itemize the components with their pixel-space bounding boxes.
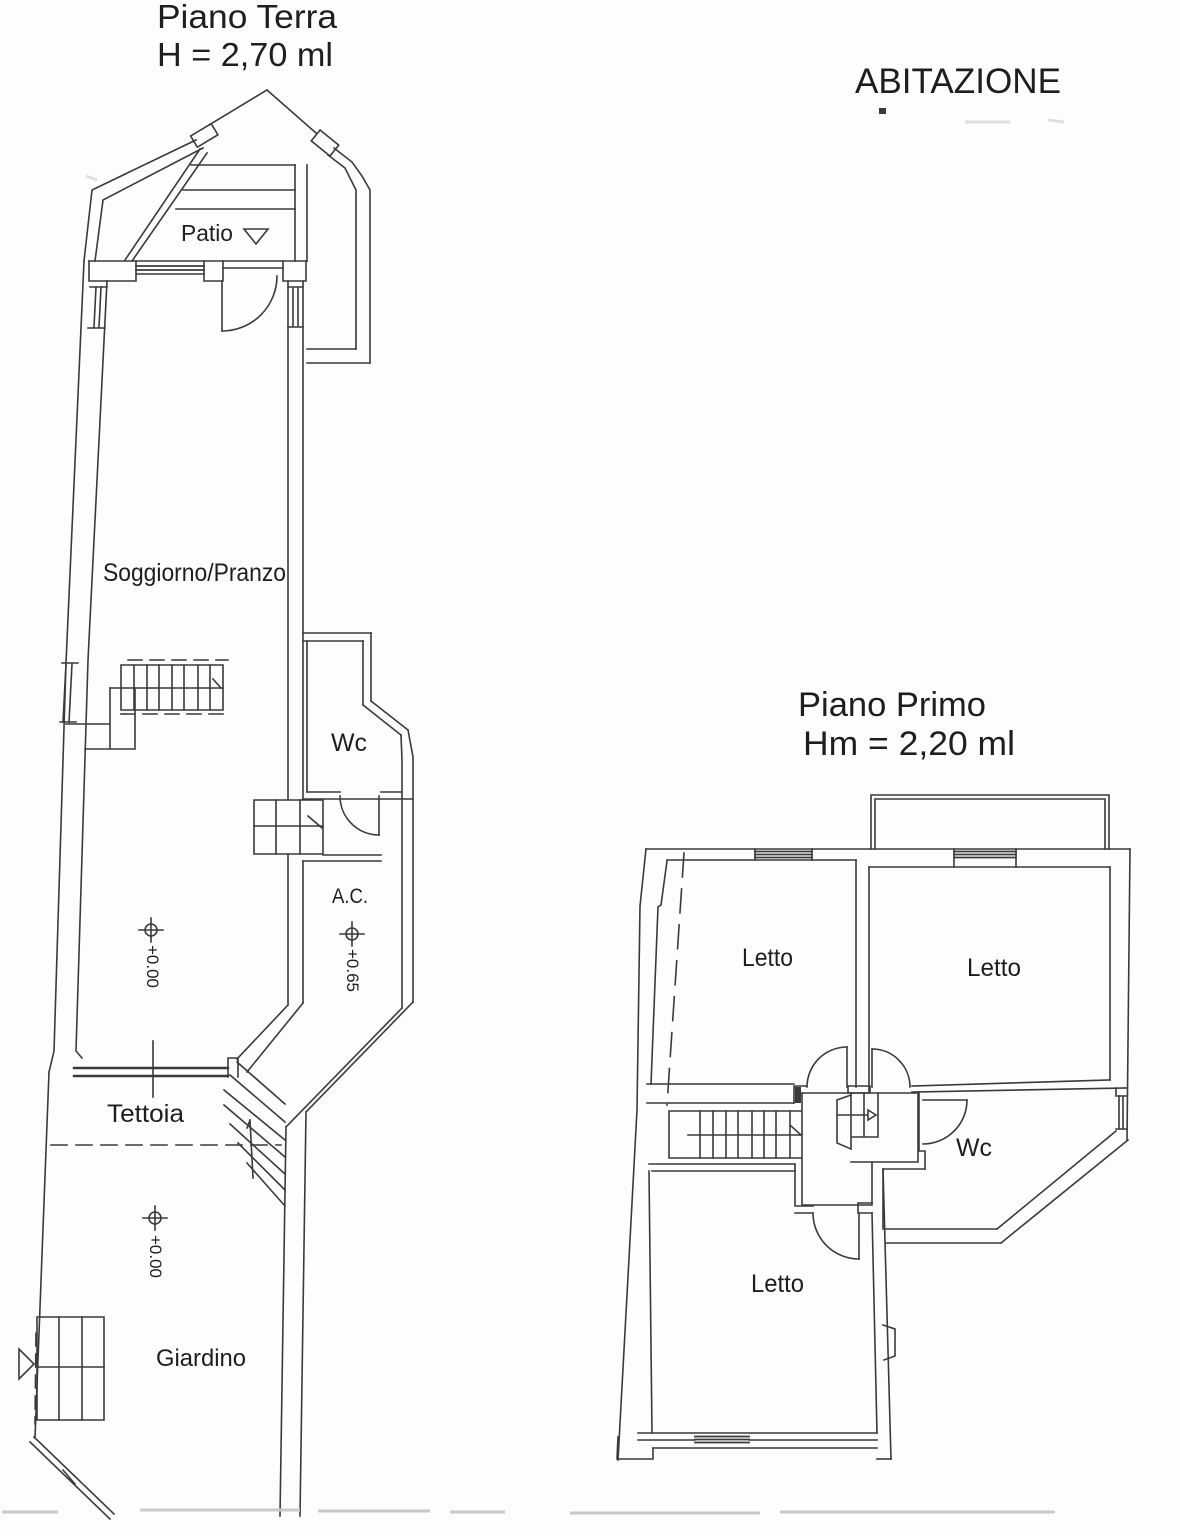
svg-text:Patio: Patio (181, 220, 233, 246)
svg-text:Piano Terra: Piano Terra (157, 0, 338, 35)
svg-text:Letto: Letto (742, 944, 793, 972)
svg-text:Giardino: Giardino (156, 1345, 246, 1372)
svg-text:Letto: Letto (967, 954, 1021, 982)
svg-text:Hm = 2,20 ml: Hm = 2,20 ml (803, 725, 1015, 763)
svg-text:Wc: Wc (331, 729, 367, 757)
svg-text:Piano Primo: Piano Primo (798, 686, 986, 724)
svg-text:Wc: Wc (956, 1134, 992, 1162)
svg-text:ABITAZIONE: ABITAZIONE (855, 62, 1061, 101)
svg-text:Letto: Letto (751, 1270, 804, 1298)
svg-text:+0.65: +0.65 (343, 949, 362, 992)
svg-text:Tettoia: Tettoia (107, 1100, 184, 1128)
svg-text:+0.00: +0.00 (146, 1235, 165, 1278)
svg-text:A.C.: A.C. (332, 885, 368, 908)
svg-text:Soggiorno/Pranzo: Soggiorno/Pranzo (103, 559, 286, 587)
svg-text:+0.00: +0.00 (143, 945, 162, 988)
svg-text:H = 2,70 ml: H = 2,70 ml (157, 36, 333, 73)
